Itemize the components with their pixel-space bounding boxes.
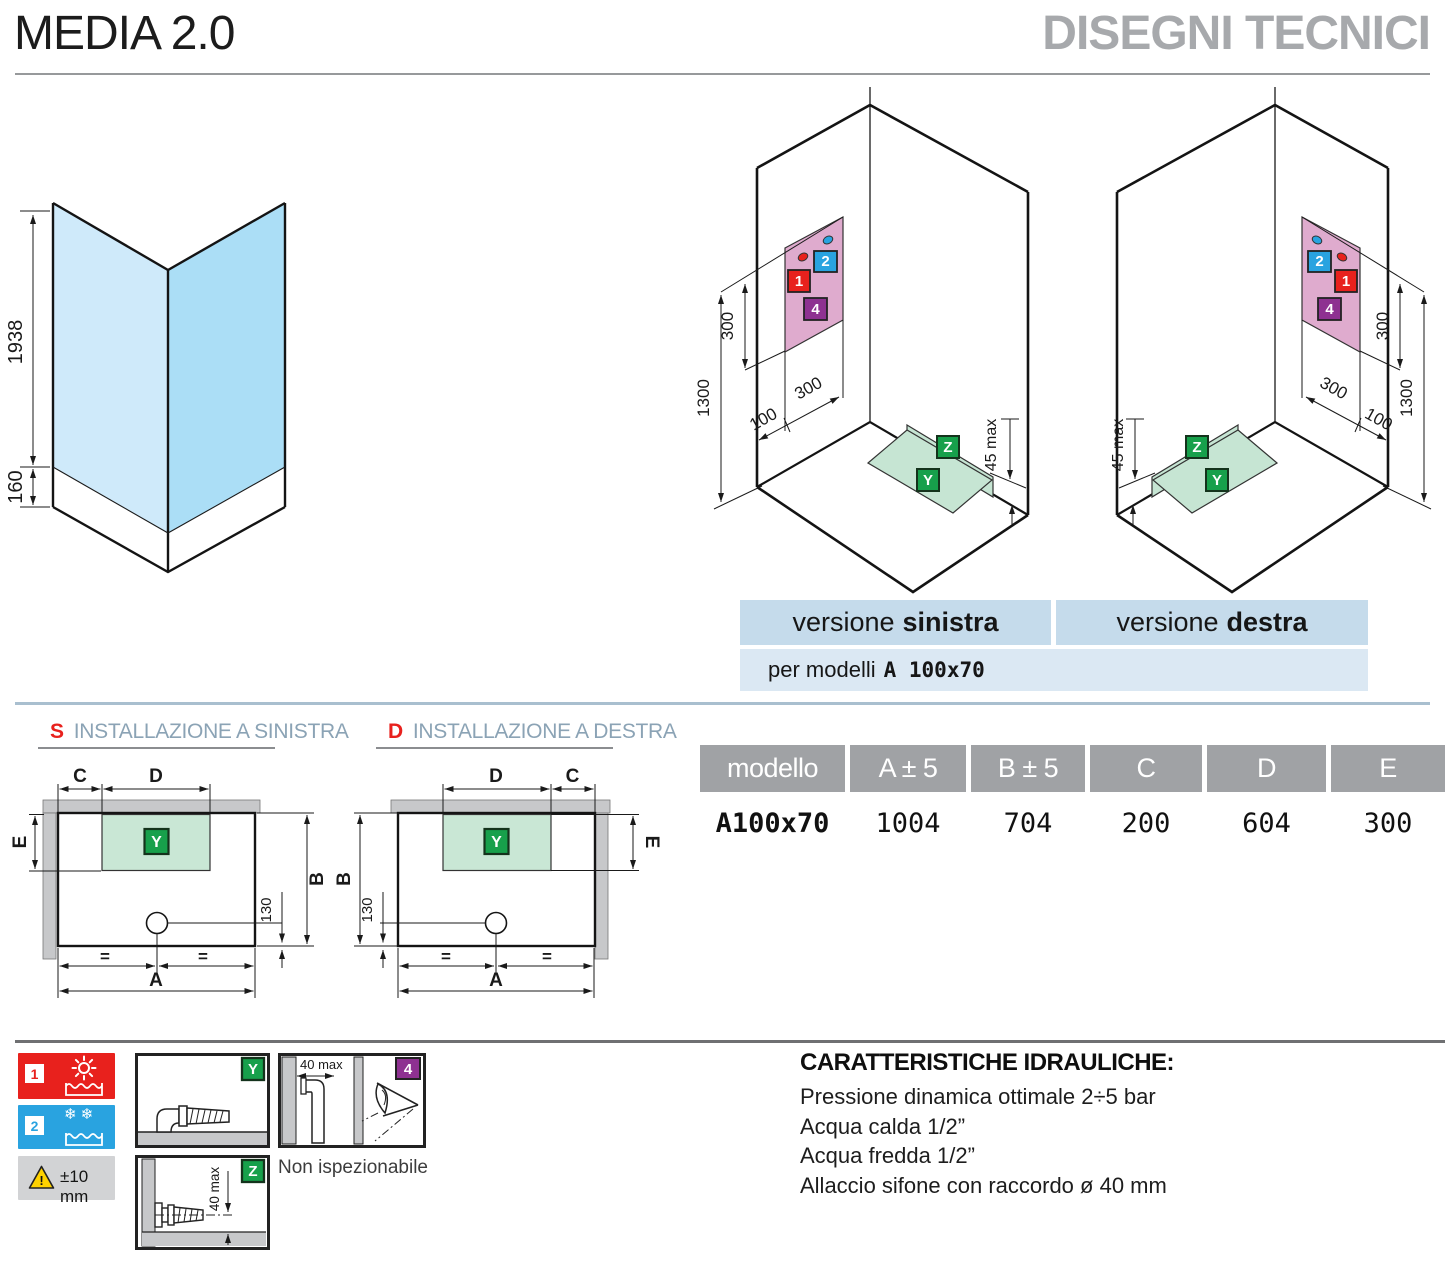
glass-panels-diagram: 1938 160	[0, 170, 340, 610]
hydraulics-line-cold: Acqua fredda 1/2”	[800, 1141, 1440, 1171]
header-rule	[15, 73, 1430, 75]
dim-label-130: 130	[359, 897, 376, 922]
dim-label-300s: 300	[791, 373, 825, 403]
wall-strip-left	[282, 1057, 296, 1144]
dim-label-e: E	[641, 836, 662, 849]
cell-c: 200	[1090, 801, 1202, 846]
plan-left-title: SINSTALLAZIONE A SINISTRA	[50, 720, 349, 744]
dim-label-a: A	[489, 970, 503, 991]
wall-top	[43, 800, 260, 813]
dim-label-40max: 40 max	[300, 1057, 343, 1072]
sun-icon	[68, 1055, 100, 1082]
callout-label-y: Y	[248, 1061, 258, 1078]
hydraulics-line-hot: Acqua calda 1/2”	[800, 1112, 1440, 1142]
floor-strip	[142, 1232, 266, 1246]
plan-right-title: DINSTALLAZIONE A DESTRA	[388, 720, 677, 744]
legend-y-detail: Y	[135, 1053, 270, 1148]
legend-4-detail: 40 max 4	[278, 1053, 426, 1148]
iso-view-right-version: 1 2 4 Z Y 300 1300 100 300 45 max	[1073, 85, 1445, 605]
callout-label-y: Y	[1212, 472, 1222, 489]
iso-view-left-version: 1 2 4 Z Y 300 1300 100 300 45 max	[700, 85, 1070, 605]
version-label: versione	[1116, 607, 1218, 638]
plan-right-letter: D	[388, 720, 403, 743]
dim-label-d: D	[489, 766, 503, 787]
table-header-row: modello A ± 5 B ± 5 C D E	[700, 745, 1445, 792]
iso-left-geometry	[714, 87, 1028, 592]
legend-z-detail: 40 max Z	[135, 1155, 270, 1250]
tolerance-value: ±10 mm	[60, 1167, 115, 1207]
table-header-d: D	[1207, 745, 1326, 792]
water-waves-icon	[64, 1080, 104, 1097]
technical-sheet-page: MEDIA 2.0 DISEGNI TECNICI 1938 160	[0, 0, 1445, 1275]
svg-text:!: !	[39, 1173, 43, 1188]
dim-label-130: 130	[258, 897, 275, 922]
dim-label-300v: 300	[1373, 312, 1392, 340]
legend-number-2: 2	[25, 1116, 44, 1135]
legend-cold-water-card: 2 ❄❄	[18, 1105, 115, 1149]
dim-label-c: C	[73, 766, 87, 787]
plan-left-title-text: INSTALLAZIONE A SINISTRA	[74, 720, 349, 743]
plan-left-letter: S	[50, 720, 64, 743]
wall-top	[391, 800, 610, 813]
models-bar: per modelli A 100x70	[740, 649, 1368, 691]
dim-label-1300: 1300	[1397, 379, 1416, 417]
dim-label-45max: 45 max	[983, 419, 1000, 471]
callout-label-z: Z	[1192, 439, 1201, 456]
callout-label-4: 4	[404, 1061, 413, 1078]
cell-a: 1004	[850, 801, 966, 846]
table-row: A100x70 1004 704 200 604 300	[700, 801, 1445, 846]
hydraulics-line-pressure: Pressione dinamica ottimale 2÷5 bar	[800, 1082, 1440, 1112]
snowflakes-icon: ❄❄	[64, 1105, 97, 1123]
table-header-c: C	[1090, 745, 1202, 792]
callout-label-2: 2	[821, 253, 829, 270]
callout-label-1: 1	[1342, 273, 1350, 290]
cell-e: 300	[1331, 801, 1445, 846]
callout-label-z: Z	[943, 439, 952, 456]
dim-label-d: D	[149, 766, 163, 787]
hydraulics-title: CARATTERISTICHE IDRAULICHE:	[800, 1049, 1440, 1077]
legend-hot-water-card: 1	[18, 1053, 115, 1099]
dim-label-40max: 40 max	[207, 1167, 222, 1212]
dim-label-c: C	[566, 766, 580, 787]
wall-strip-middle	[354, 1057, 363, 1144]
dimensions-table: modello A ± 5 B ± 5 C D E A100x70 1004 7…	[700, 745, 1445, 846]
callout-label-y: Y	[923, 472, 933, 489]
dim-label-e: E	[10, 836, 31, 849]
drain-hole	[486, 913, 507, 934]
drain-hole	[147, 913, 168, 934]
non-inspectable-note: Non ispezionabile	[278, 1157, 428, 1179]
table-header-a: A ± 5	[850, 745, 966, 792]
dim-label-45max: 45 max	[1110, 419, 1127, 471]
cell-model: A100x70	[700, 801, 845, 846]
page-title: MEDIA 2.0	[14, 6, 234, 61]
water-waves-icon	[64, 1130, 104, 1147]
cell-d: 604	[1207, 801, 1326, 846]
dim-label-a: A	[149, 970, 163, 991]
callout-label-4: 4	[1325, 301, 1334, 318]
dim-label-b: B	[334, 872, 355, 886]
version-left-bar: versione sinistra	[740, 600, 1051, 645]
floor-strip	[138, 1132, 267, 1145]
version-label: versione	[792, 607, 894, 638]
divider-blue	[15, 702, 1430, 705]
pipe-flange	[301, 1078, 306, 1094]
cell-b: 704	[971, 801, 1085, 846]
equal-mark: =	[441, 947, 451, 966]
version-left-name: sinistra	[903, 607, 999, 638]
hydraulics-block: CARATTERISTICHE IDRAULICHE: Pressione di…	[800, 1049, 1440, 1200]
plan-left-rule	[38, 747, 275, 749]
version-right-bar: versione destra	[1056, 600, 1368, 645]
table-header-b: B ± 5	[971, 745, 1085, 792]
wall-left	[43, 813, 56, 959]
callout-label-z: Z	[248, 1163, 257, 1180]
callout-label-y: Y	[151, 834, 162, 851]
equal-mark: =	[542, 947, 552, 966]
divider-dark	[15, 1040, 1445, 1043]
section-title: DISEGNI TECNICI	[1042, 6, 1430, 61]
warning-icon: !	[28, 1165, 55, 1190]
callout-label-y: Y	[491, 834, 502, 851]
plan-right-rule	[376, 747, 613, 749]
dim-label-100: 100	[746, 404, 780, 434]
pipe-collar	[179, 1106, 187, 1126]
dim-label-1938: 1938	[5, 320, 27, 365]
equal-mark: =	[100, 947, 110, 966]
callout-label-2: 2	[1315, 253, 1323, 270]
legend-number-1: 1	[25, 1064, 44, 1083]
dim-label-300s: 300	[1317, 373, 1351, 403]
plan-right-title-text: INSTALLAZIONE A DESTRA	[413, 720, 677, 743]
callout-label-4: 4	[811, 301, 820, 318]
table-header-e: E	[1331, 745, 1445, 792]
plan-view-left: Y C D E B 130 = = A	[20, 758, 340, 1010]
plan-view-right: Y D C E B 130 = = A	[344, 758, 670, 1010]
models-label: per modelli	[768, 657, 876, 683]
dim-label-1300: 1300	[694, 379, 713, 417]
equal-mark: =	[198, 947, 208, 966]
model-name: A 100x70	[884, 658, 985, 682]
version-right-name: destra	[1227, 607, 1308, 638]
dim-label-160: 160	[5, 470, 27, 503]
dim-label-b: B	[307, 872, 328, 886]
table-header-modello: modello	[700, 745, 845, 792]
callout-label-1: 1	[795, 273, 803, 290]
legend-tolerance-card: ! ±10 mm	[18, 1156, 115, 1200]
dim-label-300v: 300	[718, 312, 737, 340]
wall-right	[595, 813, 608, 959]
hydraulics-line-siphon: Allaccio sifone con raccordo ø 40 mm	[800, 1171, 1440, 1201]
